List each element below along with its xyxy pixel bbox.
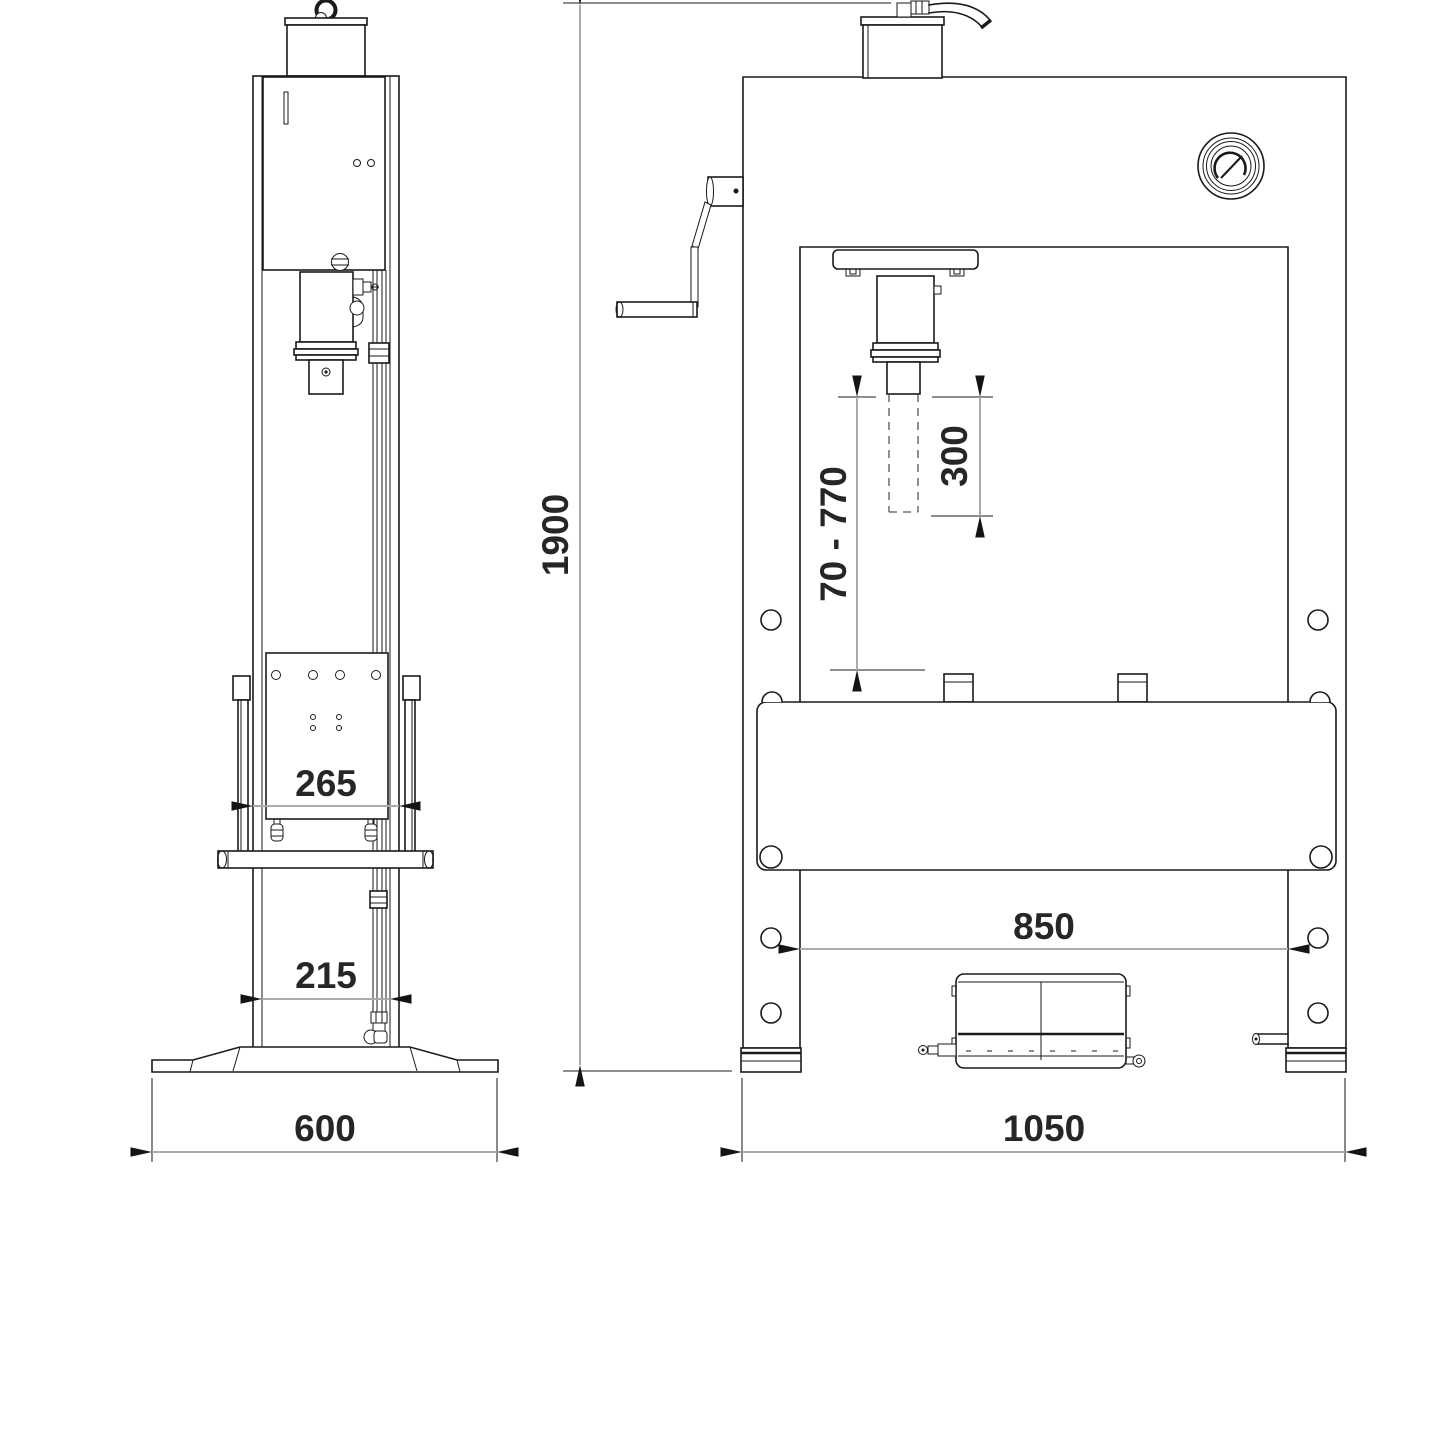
dim-base-width: 600 [152, 1078, 497, 1162]
press-table [757, 692, 1336, 870]
dim-label-265: 265 [295, 763, 357, 804]
dim-overall-width: 1050 [742, 1078, 1345, 1162]
dim-label-850: 850 [1013, 906, 1075, 947]
pedal-hook-icon [1126, 1055, 1145, 1067]
pressure-gauge-icon [1198, 133, 1264, 199]
base-foot-front-right [1286, 1048, 1346, 1072]
ram [887, 362, 920, 394]
front-view: 1900 70 - 770 300 850 1050 [535, 1, 1346, 1162]
stop-block-left [944, 674, 973, 702]
dim-label-215: 215 [295, 955, 357, 996]
dim-label-600: 600 [294, 1108, 356, 1149]
carriage-bracket-left [233, 676, 250, 700]
hose-fitting-icon [897, 1, 929, 17]
base-foot-side [152, 1047, 498, 1072]
dim-label-1050: 1050 [1003, 1108, 1085, 1149]
stop-block-right [1118, 674, 1147, 702]
crank-handle [616, 177, 743, 317]
ram-extended-dashed [889, 394, 918, 512]
dim-label-300: 300 [934, 425, 975, 487]
hydraulic-pipe [1253, 1034, 1289, 1045]
cylinder-mount-plate [833, 250, 978, 269]
carriage-bracket-right [403, 676, 420, 700]
dim-label-70-770: 70 - 770 [813, 466, 854, 602]
carriage-axle [218, 851, 434, 868]
dim-stroke: 300 [931, 397, 993, 516]
base-foot-front-left [741, 1048, 801, 1072]
technical-drawing-canvas: 265 215 600 [0, 0, 1440, 1440]
pump-unit-side [285, 18, 367, 76]
dim-inner-width: 850 [800, 906, 1288, 949]
table-pin-bottom-right [1310, 846, 1332, 868]
rod-clamp-lower [370, 891, 387, 908]
cylinder-body [877, 276, 934, 343]
side-view: 265 215 600 [152, 1, 498, 1163]
rod-clamp-upper [369, 343, 389, 363]
pedal-hose-fitting-icon [919, 1044, 957, 1056]
ram-tip-side [309, 360, 343, 394]
dim-daylight-range: 70 - 770 [813, 397, 925, 670]
screw-icon [332, 254, 349, 271]
hydraulic-cylinder-front [833, 250, 978, 394]
dim-label-1900: 1900 [535, 494, 576, 576]
foot-pedal [919, 974, 1146, 1068]
pump-unit-front [861, 1, 991, 78]
table-pin-bottom-left [760, 846, 782, 868]
